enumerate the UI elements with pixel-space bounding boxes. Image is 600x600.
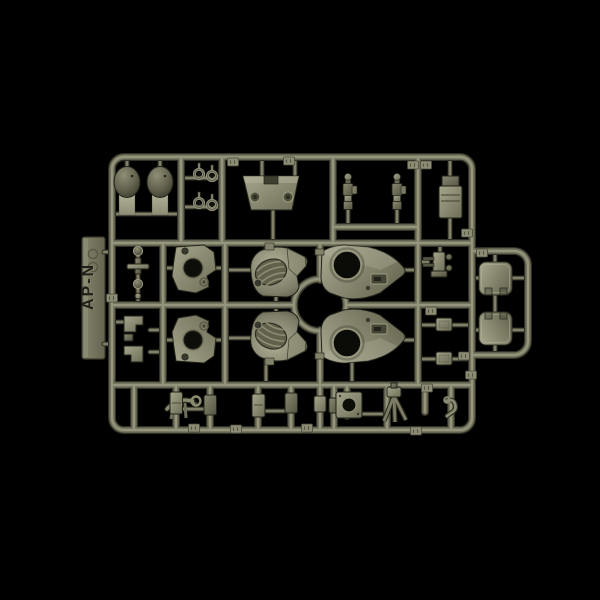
part-number-tag	[459, 352, 470, 360]
part-small-block	[314, 396, 326, 412]
part-number-tag	[422, 384, 433, 392]
part-suspension-assembly-left	[343, 173, 357, 209]
part-small-block	[204, 395, 217, 415]
part-number-tag	[228, 158, 239, 166]
part-number-tag	[302, 424, 313, 432]
part-turret-shell-upper	[251, 243, 308, 297]
part-c-clips	[194, 163, 216, 210]
part-turret-shell-lower	[251, 311, 308, 365]
part-bracket-lower	[124, 346, 143, 362]
part-bracket-upper	[124, 316, 143, 341]
part-dome-shell-left	[114, 167, 140, 216]
part-hull-half-upper	[315, 245, 405, 299]
photo-background: AP-N AP-N	[0, 0, 600, 600]
part-hatch-cover-lower	[479, 312, 512, 345]
part-plate-with-holes-lower	[172, 315, 216, 363]
part-square-plate-with-hole	[336, 392, 362, 418]
part-hull-half-lower	[315, 309, 405, 363]
part-gun-mount	[423, 252, 452, 277]
part-number-tag	[477, 249, 488, 257]
part-number-tag	[408, 161, 419, 169]
sprue-label-tab: AP-N AP-N	[80, 237, 105, 359]
sprue-label-text: AP-N	[80, 263, 97, 310]
part-small-block	[252, 394, 265, 417]
part-number-tag	[462, 229, 473, 237]
part-number-tag	[421, 161, 432, 169]
part-number-tag	[189, 424, 200, 432]
part-number-tag	[411, 427, 422, 435]
part-number-tag	[466, 371, 477, 379]
part-hatch-cover-upper	[479, 262, 512, 295]
part-small-block	[285, 393, 298, 413]
part-number-tag	[284, 157, 295, 165]
part-dome-shell-right	[147, 167, 173, 216]
part-small-box	[436, 318, 452, 331]
part-canister	[439, 176, 462, 218]
sprue-photo: AP-N AP-N	[0, 0, 600, 600]
part-suspension-assembly-right	[392, 173, 406, 209]
part-number-tag	[231, 425, 242, 433]
part-small-box	[436, 352, 452, 365]
part-trapezoid-plate	[243, 176, 299, 210]
part-plate-with-holes-upper	[172, 245, 216, 293]
part-small-block	[170, 392, 183, 414]
part-number-tag	[107, 294, 118, 302]
part-number-tag	[426, 307, 437, 315]
